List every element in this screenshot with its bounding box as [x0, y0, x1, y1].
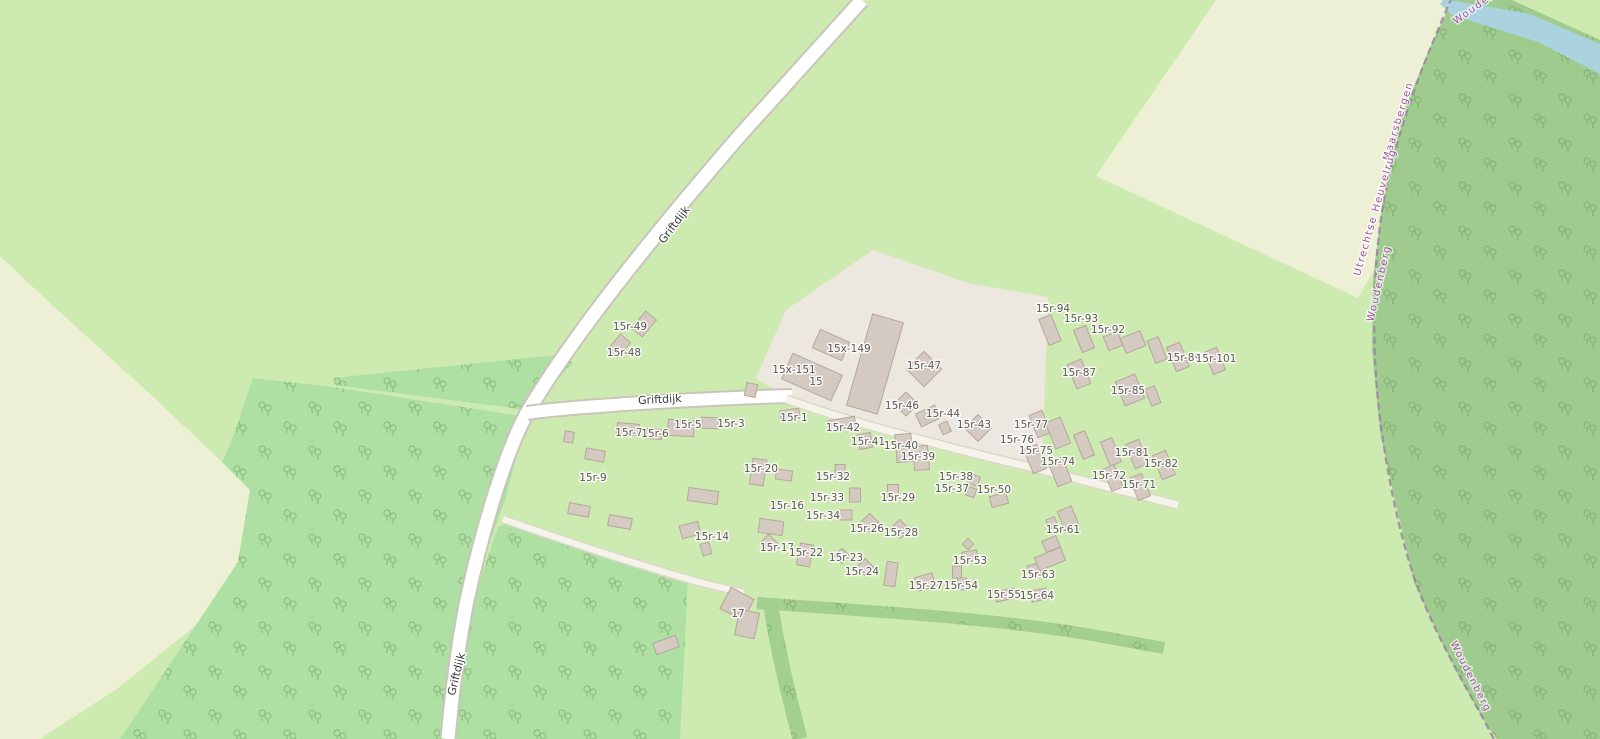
house-number-label: 15r-64	[1020, 590, 1054, 602]
house-number-label: 15r-82	[1144, 458, 1178, 470]
house-number-label: 15r-1	[780, 412, 807, 424]
building	[758, 518, 784, 535]
house-number-label: 15r-27	[909, 580, 943, 592]
building	[564, 431, 575, 443]
house-number-label: 15r-48	[607, 347, 641, 359]
house-number-label: 15r-54	[944, 580, 978, 592]
house-number-label: 15r-44	[926, 408, 960, 420]
house-number-label: 15r-49	[613, 321, 647, 333]
house-number-label: 15r-23	[829, 552, 863, 564]
house-number-label: 15r-14	[695, 531, 729, 543]
house-number-label: 15r-22	[789, 547, 823, 559]
house-number-label: 15r-6	[641, 428, 669, 440]
house-number-label: 15r-55	[987, 589, 1021, 601]
house-number-label: 15r-61	[1046, 524, 1080, 536]
building	[838, 510, 852, 520]
house-number-label: 15r-20	[744, 463, 778, 475]
house-number-label: 15r-101	[1196, 353, 1237, 365]
house-number-label: 15	[809, 376, 822, 388]
house-number-label: 15r-16	[770, 500, 804, 512]
house-number-label: 15r-9	[579, 472, 606, 484]
house-number-label: 17	[731, 608, 744, 620]
house-number-label: 15r-3	[717, 418, 744, 430]
house-number-label: 15r-53	[953, 555, 987, 567]
house-number-label: 15r-74	[1041, 456, 1075, 468]
house-number-label: 15r-38	[939, 471, 973, 483]
house-number-label: 15r-33	[810, 492, 844, 504]
building	[850, 488, 861, 502]
house-number-label: 15r-71	[1122, 479, 1156, 491]
house-number-label: 15r-50	[977, 484, 1011, 496]
map-canvas[interactable]: 15r-4915r-4815x-1511515x-14915r-4715r-46…	[0, 0, 1600, 739]
house-number-label: 15x-149	[827, 343, 870, 355]
building	[701, 417, 719, 429]
house-number-label: 15r-77	[1014, 419, 1048, 431]
house-number-label: 15r-37	[935, 483, 969, 495]
house-number-label: 15r-26	[850, 523, 884, 535]
house-number-label: 15r-34	[806, 510, 840, 522]
house-number-label: 15r-28	[884, 527, 918, 539]
house-number-label: 15r-32	[816, 471, 850, 483]
house-number-label: 15r-41	[851, 436, 885, 448]
house-number-label: 15x-151	[772, 364, 815, 376]
house-number-label: 15r-47	[907, 360, 941, 372]
house-number-label: 15r-92	[1091, 324, 1125, 336]
map-viewport[interactable]: 15r-4915r-4815x-1511515x-14915r-4715r-46…	[0, 0, 1600, 739]
house-number-label: 15r-24	[845, 566, 879, 578]
house-number-label: 15r-85	[1111, 385, 1145, 397]
house-number-label: 15r-63	[1021, 569, 1055, 581]
house-number-label: 15r-43	[957, 419, 991, 431]
house-number-label: 15r-87	[1062, 367, 1096, 379]
house-number-label: 15r-46	[885, 400, 919, 412]
house-number-label: 15r-39	[901, 451, 935, 463]
house-number-label: 15r-29	[881, 492, 915, 504]
building	[744, 382, 757, 397]
house-number-label: 15r-5	[674, 419, 701, 431]
road-name-label: Griftdijk	[638, 392, 683, 407]
house-number-label: 15r-7	[615, 427, 642, 439]
house-number-label: 15r-42	[826, 422, 860, 434]
building	[953, 566, 962, 578]
